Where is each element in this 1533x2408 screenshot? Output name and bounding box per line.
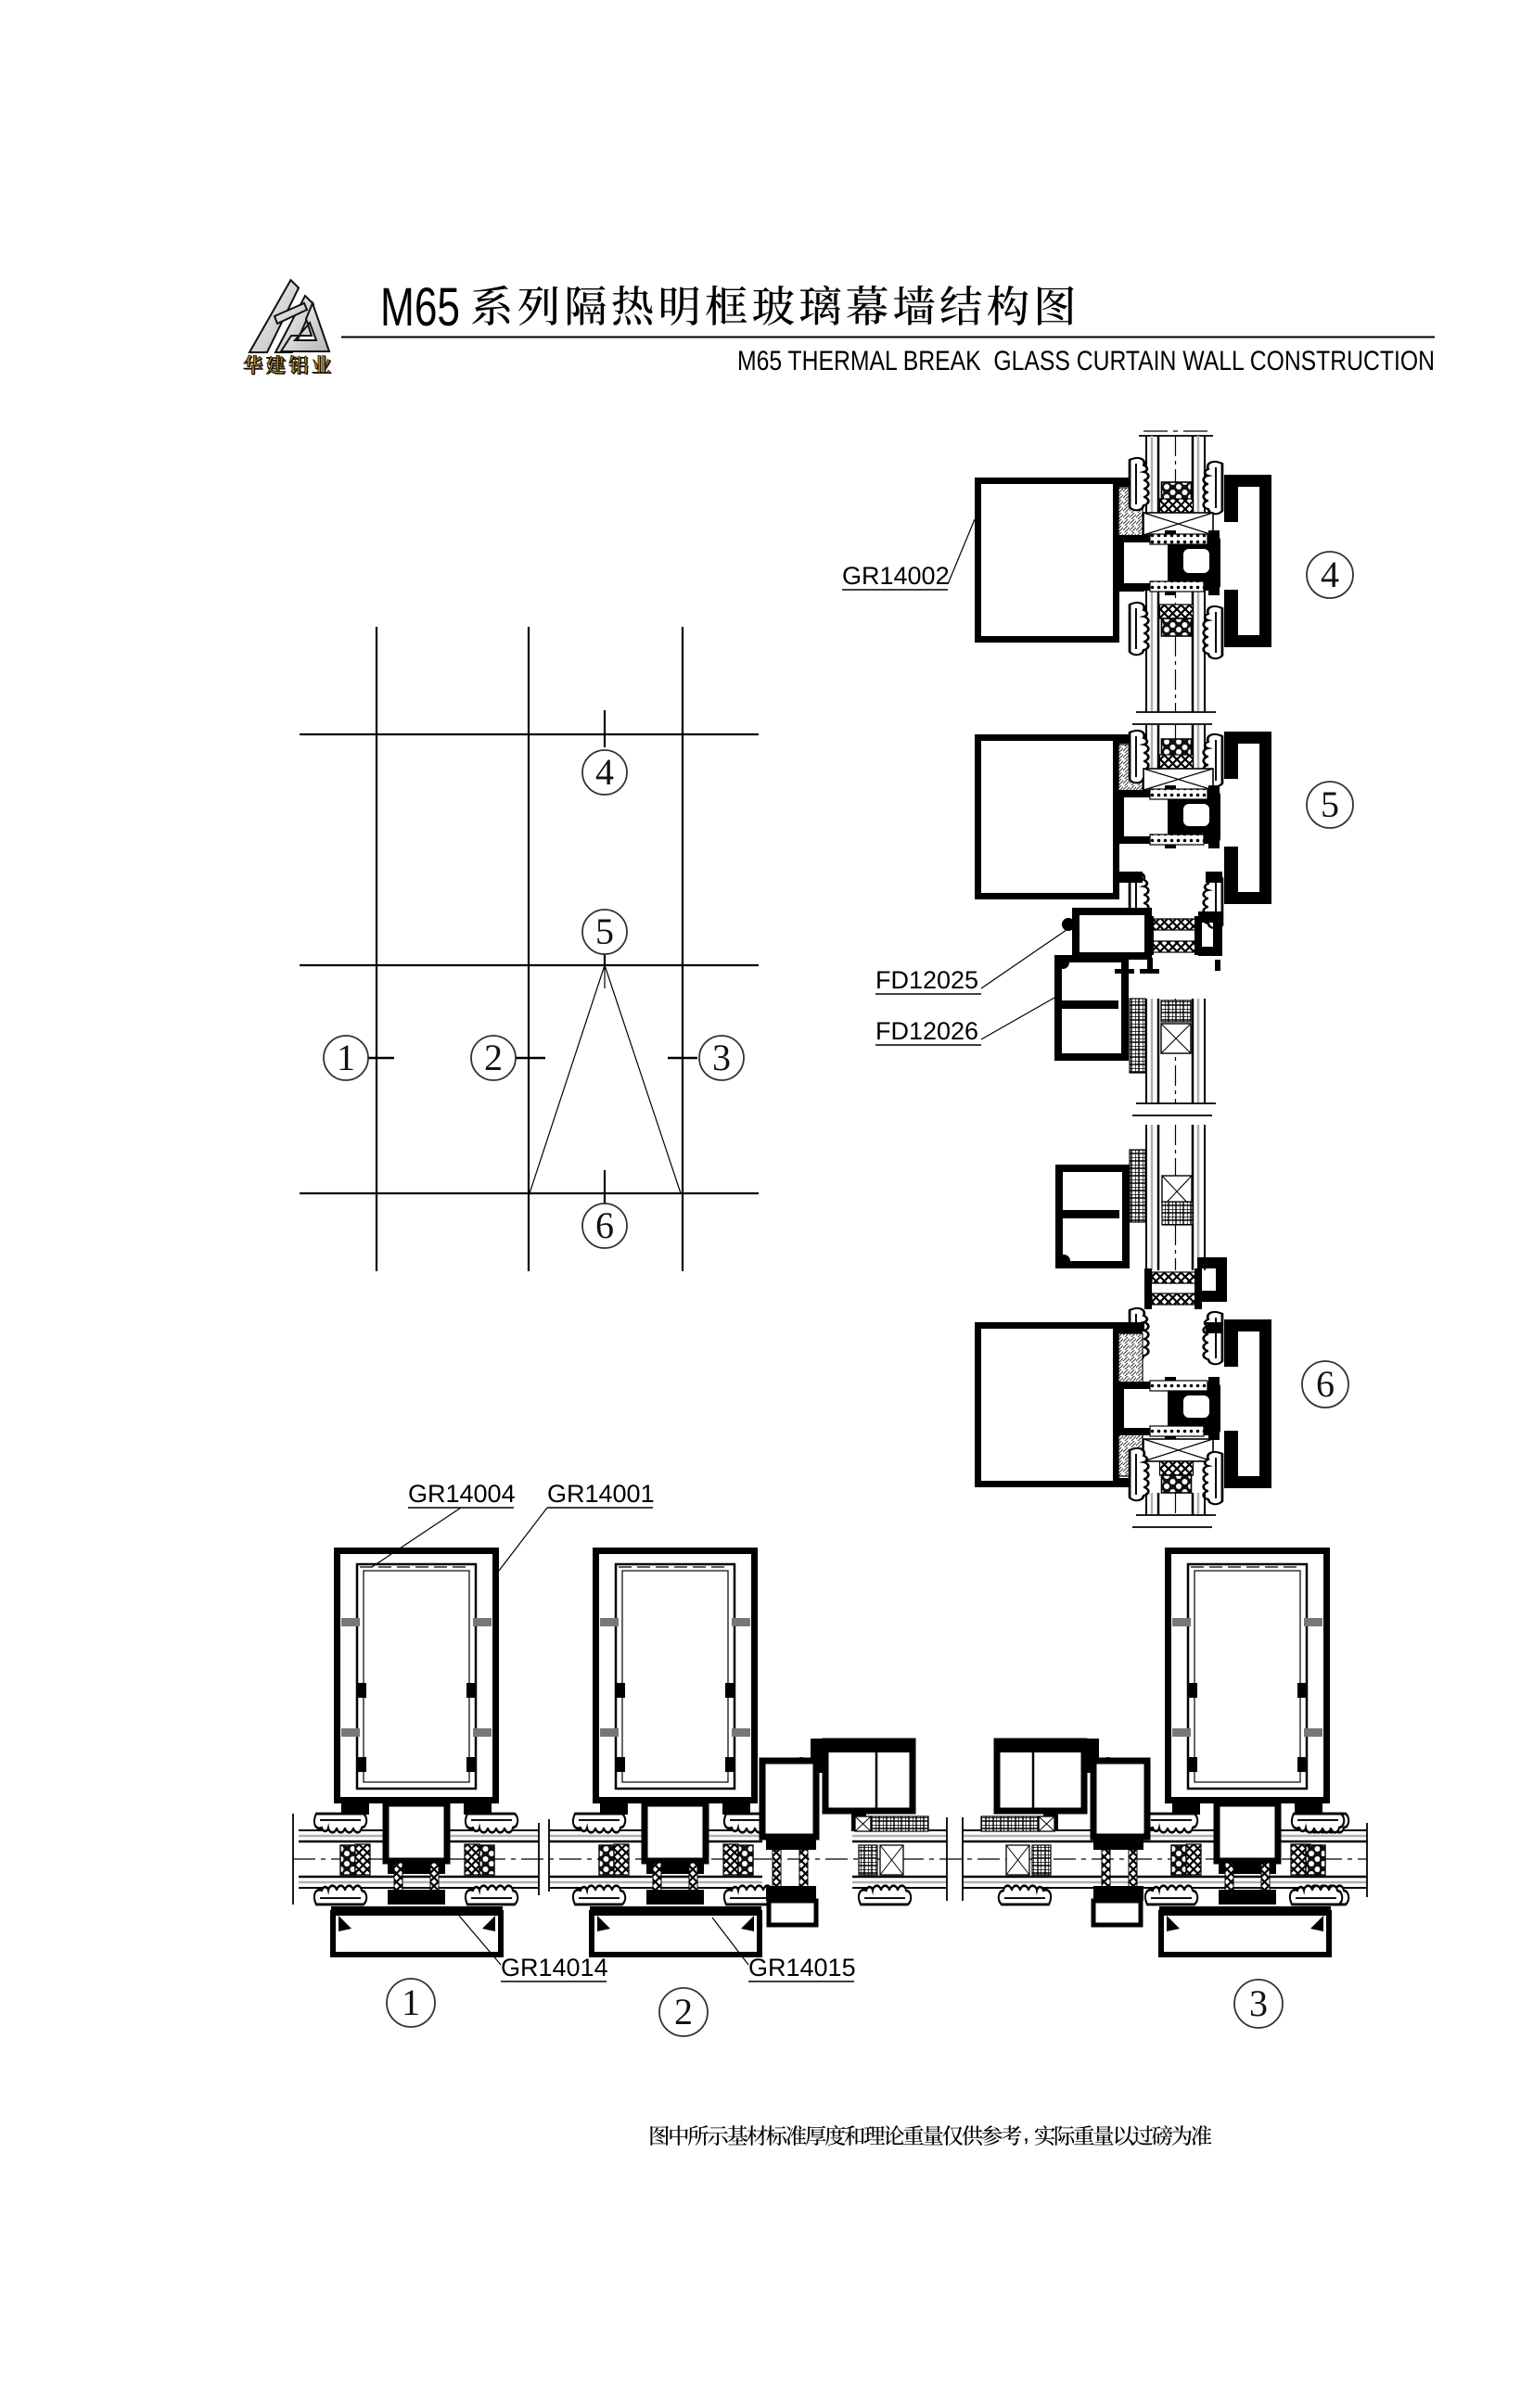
svg-text:5: 5 [1321, 784, 1339, 825]
svg-text:2: 2 [674, 1991, 693, 2032]
svg-text:3: 3 [712, 1037, 731, 1078]
svg-text:3: 3 [1249, 1982, 1268, 2024]
svg-text:1: 1 [402, 1981, 420, 2023]
svg-text:2: 2 [484, 1037, 503, 1078]
svg-text:,: , [1023, 2119, 1029, 2147]
svg-text:FD12026: FD12026 [875, 1017, 978, 1045]
svg-text:M65 THERMAL BREAK GLASS CURTA: M65 THERMAL BREAK GLASS CURTAIN WALL CON… [737, 346, 1435, 376]
svg-text:GR14002: GR14002 [842, 562, 950, 590]
svg-text:GR14004: GR14004 [408, 1480, 516, 1508]
svg-text:GR14014: GR14014 [501, 1954, 608, 1981]
svg-text:6: 6 [595, 1204, 614, 1246]
svg-text:5: 5 [595, 911, 614, 952]
svg-text:1: 1 [337, 1037, 355, 1078]
svg-text:GR14001: GR14001 [547, 1480, 655, 1508]
svg-text:4: 4 [595, 751, 614, 793]
svg-text:4: 4 [1321, 554, 1339, 595]
svg-text:6: 6 [1316, 1363, 1335, 1405]
svg-text:FD12025: FD12025 [875, 966, 978, 994]
svg-text:GR14015: GR14015 [748, 1954, 856, 1981]
svg-text:M65: M65 [380, 277, 460, 338]
